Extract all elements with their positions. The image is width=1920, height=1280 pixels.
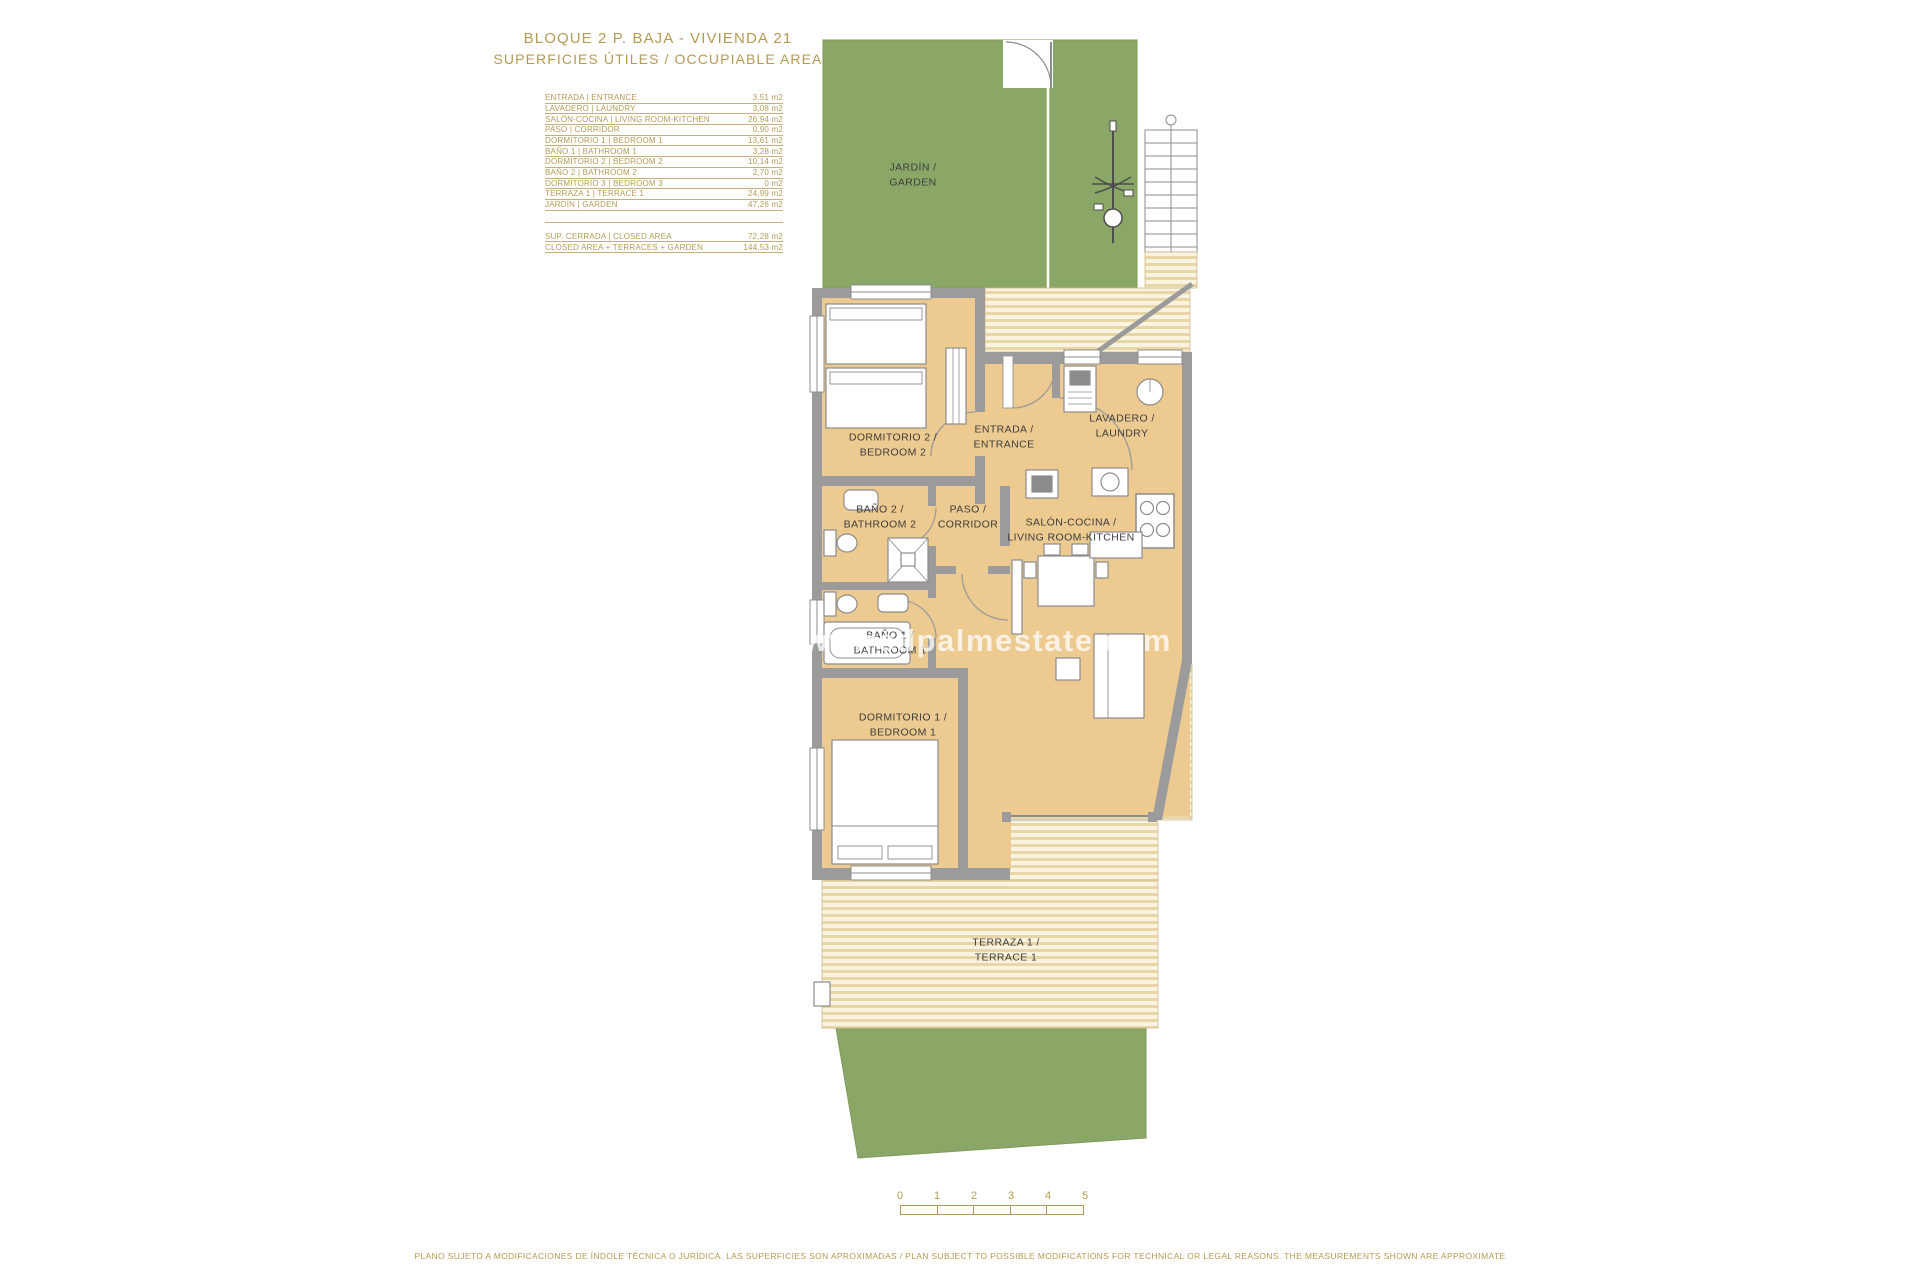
terrace-pillar [814, 982, 830, 1006]
room-label-line: SALÓN-COCINA / [1007, 516, 1134, 531]
bed-icon [826, 304, 926, 364]
scale-cell [1011, 1206, 1048, 1214]
room-label-line: DORMITORIO 2 / [849, 431, 937, 446]
window [1064, 350, 1100, 364]
room-label-line: ENTRADA / [974, 423, 1035, 438]
room-label-line: BEDROOM 1 [859, 725, 947, 740]
scale-cell [974, 1206, 1011, 1214]
room-label-salon: SALÓN-COCINA / LIVING ROOM-KITCHEN [1007, 516, 1134, 545]
scale-cell [938, 1206, 975, 1214]
room-label-line: DORMITORIO 1 / [859, 711, 947, 726]
round-sink-icon [1137, 379, 1163, 405]
garden-gate [1003, 40, 1053, 88]
scale-number: 4 [1045, 1190, 1051, 1202]
room-label-line: BATHROOM 2 [844, 517, 917, 532]
scale-bar: 0 1 2 3 4 5 [900, 1190, 1085, 1218]
scale-number: 3 [1008, 1190, 1014, 1202]
floor-plan-page: BLOQUE 2 P. BAJA - VIVIENDA 21 SUPERFICI… [0, 0, 1920, 1280]
room-label-line: LIVING ROOM-KITCHEN [1007, 530, 1134, 545]
window [1138, 350, 1182, 364]
garden-bottom [836, 1028, 1146, 1158]
double-bed-icon [832, 740, 938, 864]
wardrobe-icon [946, 348, 966, 424]
scale-number: 0 [897, 1190, 903, 1202]
room-label-dormitorio1: DORMITORIO 1 / BEDROOM 1 [859, 711, 947, 740]
sink-icon [878, 594, 908, 612]
room-label-entrada: ENTRADA / ENTRANCE [974, 423, 1035, 452]
window [810, 748, 824, 830]
window [851, 866, 931, 880]
watermark: www.redpalmestate.com [778, 623, 1172, 659]
room-label-jardin: JARDÍN / GARDEN [889, 161, 936, 190]
scale-number: 1 [934, 1190, 940, 1202]
room-label-lavadero: LAVADERO / LAUNDRY [1089, 412, 1154, 441]
room-label-line: LAVADERO / [1089, 412, 1154, 427]
scale-number: 2 [971, 1190, 977, 1202]
room-label-line: BEDROOM 2 [849, 445, 937, 460]
scale-cell [1047, 1206, 1083, 1214]
washing-machine-icon [1064, 366, 1096, 412]
room-label-paso: PASO / CORRIDOR [938, 503, 998, 532]
room-label-line: TERRAZA 1 / [972, 936, 1039, 951]
kitchen-sink-icon [1026, 470, 1058, 498]
kitchen-sink-icon [1092, 468, 1128, 496]
scale-track [900, 1205, 1084, 1215]
coffee-table-icon [1056, 658, 1080, 680]
room-label-line: LAUNDRY [1089, 426, 1154, 441]
window [810, 316, 824, 392]
bed-icon [826, 368, 926, 428]
disclaimer-text: PLANO SUJETO A MODIFICACIONES DE ÍNDOLE … [0, 1251, 1920, 1261]
room-label-bano2: BAÑO 2 / BATHROOM 2 [844, 503, 917, 532]
room-label-line: BAÑO 2 / [844, 503, 917, 518]
room-label-line: GARDEN [889, 175, 936, 190]
scale-number: 5 [1082, 1190, 1088, 1202]
room-label-line: PASO / [938, 503, 998, 518]
room-label-line: ENTRANCE [974, 437, 1035, 452]
room-label-line: TERRACE 1 [972, 950, 1039, 965]
room-label-dormitorio2: DORMITORIO 2 / BEDROOM 2 [849, 431, 937, 460]
scale-cell [901, 1206, 938, 1214]
shower-icon [888, 538, 928, 582]
room-label-line: JARDÍN / [889, 161, 936, 176]
room-label-terraza1: TERRAZA 1 / TERRACE 1 [972, 936, 1039, 965]
garden-top [823, 40, 1137, 288]
window [851, 285, 931, 299]
room-label-line: CORRIDOR [938, 517, 998, 532]
